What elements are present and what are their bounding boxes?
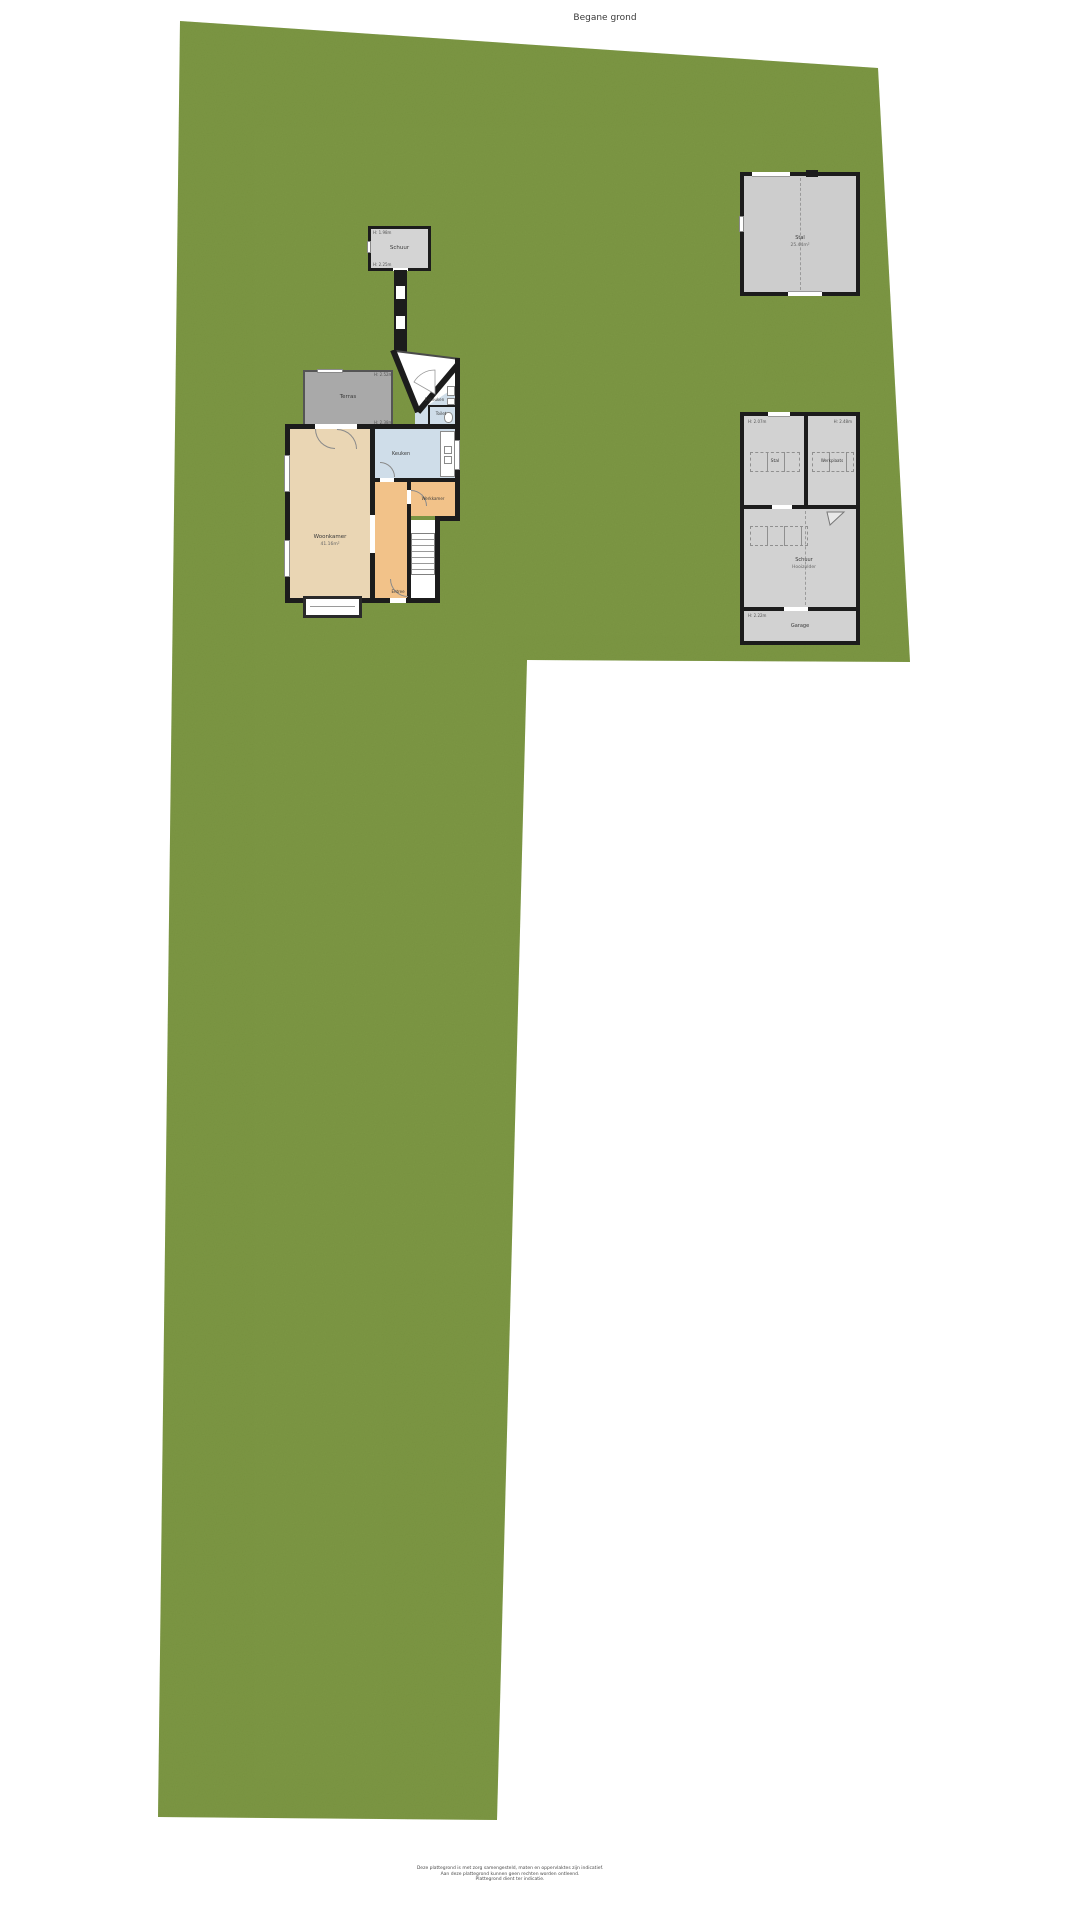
barn-schuur-label: Schuur: [764, 558, 844, 564]
house-dimension-top: H: 2.52m: [374, 372, 392, 377]
barn-wall-horizontal: [744, 505, 856, 509]
stal-door-opening-bottom: [788, 291, 822, 296]
wall-right-lower: [435, 516, 440, 603]
shed-dimension-top: H: 1.98m: [373, 230, 391, 235]
disclaimer-line: Deze plattegrond is met zorg samengestel…: [395, 1866, 625, 1872]
barn-side-door-swing: [826, 511, 846, 527]
kitchen-sink: [444, 446, 452, 454]
counter-fixture: [447, 398, 455, 405]
bay-window-mullion: [310, 606, 355, 607]
stall-boxes: [750, 452, 800, 472]
woonkamer-window: [284, 455, 290, 492]
terras-window: [317, 369, 343, 373]
house: Terras Bijkeuken Toilet Keuken Woonkamer…: [285, 350, 460, 622]
garden-path: [394, 270, 407, 354]
disclaimer-line: Plattegrond dient ter indicatie.: [395, 1877, 625, 1883]
barn-stal-dim: H: 2.07m: [748, 419, 766, 424]
barn-werkplaats-dim: H: 2.48m: [834, 419, 852, 424]
barn-door-opening-top: [768, 412, 790, 417]
stal-wall-stub: [806, 170, 818, 177]
garage-dim: H: 2.22m: [748, 613, 766, 618]
stal-building: Stal 25.44m²: [740, 172, 860, 296]
room-woonkamer: [290, 429, 370, 598]
kitchen-counter: [440, 431, 455, 477]
stall-boxes: [812, 452, 854, 472]
stal-window: [739, 216, 744, 232]
keuken-door-opening: [380, 478, 394, 482]
house-dimension-mid: H: 2.38m: [374, 420, 392, 425]
stal-center-line: [800, 178, 801, 290]
path-segment: [396, 286, 405, 299]
shed-label: Schuur: [371, 245, 428, 251]
barn-building: Stal Werkplaats Schuur Hooizolder Garage…: [740, 412, 860, 645]
bay-window: [303, 596, 362, 618]
room-terras: [303, 370, 393, 426]
site-plan-page: Begane grond H: 1.98m H: 2.25m Schuur: [0, 0, 1080, 1920]
barn-wall-vertical: [804, 416, 808, 505]
site-plan: [0, 0, 1080, 1920]
disclaimer: Deze plattegrond is met zorg samengestel…: [395, 1866, 625, 1883]
path-segment: [396, 316, 405, 329]
wall-right: [455, 358, 460, 520]
entree-door-opening: [390, 598, 406, 603]
barn-schuur-sub: Hooizolder: [764, 565, 844, 570]
stall-boxes: [750, 526, 808, 546]
barn-center-line: [805, 511, 806, 605]
garage-door-opening: [784, 607, 808, 611]
barn-door-opening: [772, 505, 792, 509]
stal-door-opening-top: [752, 172, 790, 177]
garage-label: Garage: [760, 624, 840, 630]
shed-dimension-bottom: H: 2.25m: [373, 262, 391, 267]
garden-shed: H: 1.98m H: 2.25m Schuur: [368, 226, 431, 271]
grass-texture: [0, 0, 1080, 1920]
keuken-window: [454, 440, 460, 470]
page-title: Begane grond: [515, 13, 695, 23]
woonkamer-hal-opening: [370, 515, 375, 553]
kitchen-sink: [444, 456, 452, 464]
woonkamer-window: [284, 540, 290, 577]
shed-window: [367, 241, 371, 253]
sink-fixture: [447, 386, 455, 396]
staircase: [411, 533, 435, 575]
